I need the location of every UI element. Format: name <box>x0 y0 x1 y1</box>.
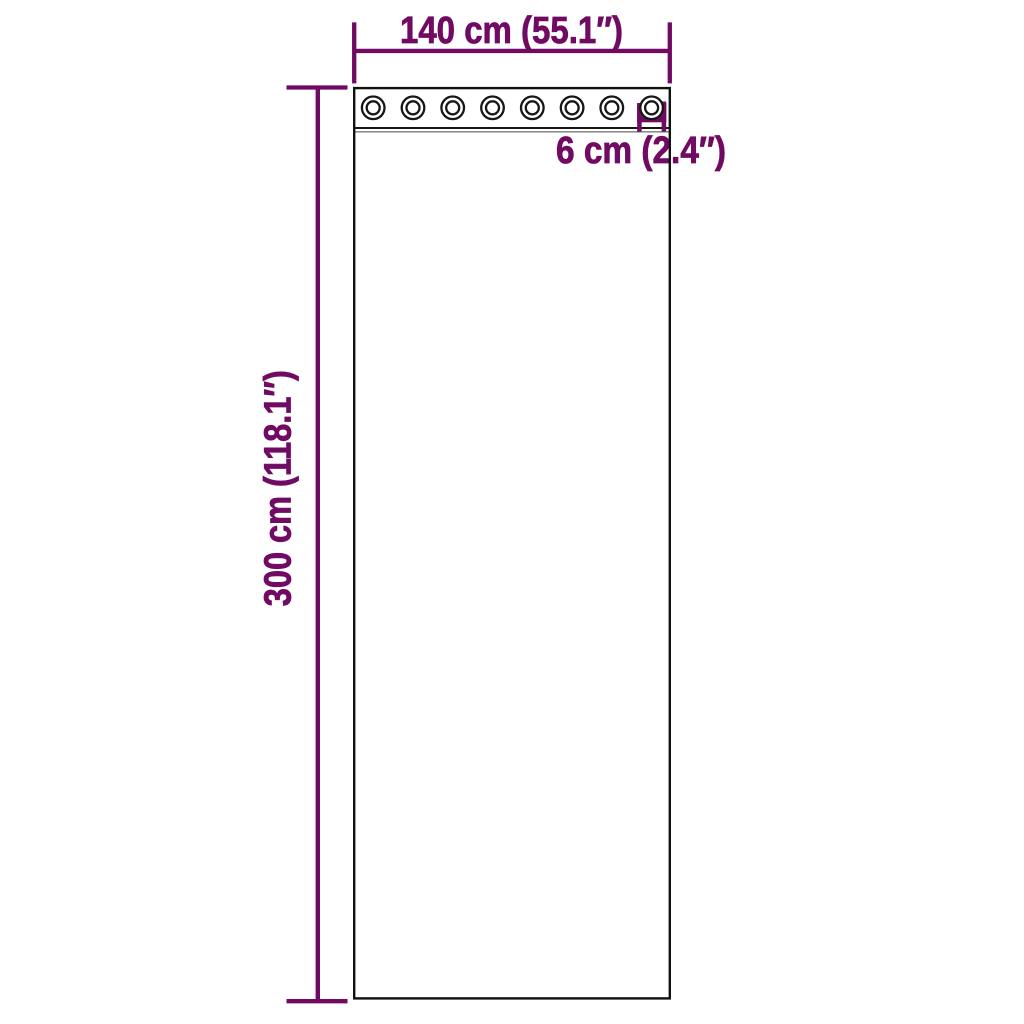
svg-text:6 cm (2.4″): 6 cm (2.4″) <box>556 130 726 172</box>
svg-text:300 cm (118.1″): 300 cm (118.1″) <box>258 370 300 606</box>
svg-text:140 cm (55.1″): 140 cm (55.1″) <box>400 10 623 52</box>
